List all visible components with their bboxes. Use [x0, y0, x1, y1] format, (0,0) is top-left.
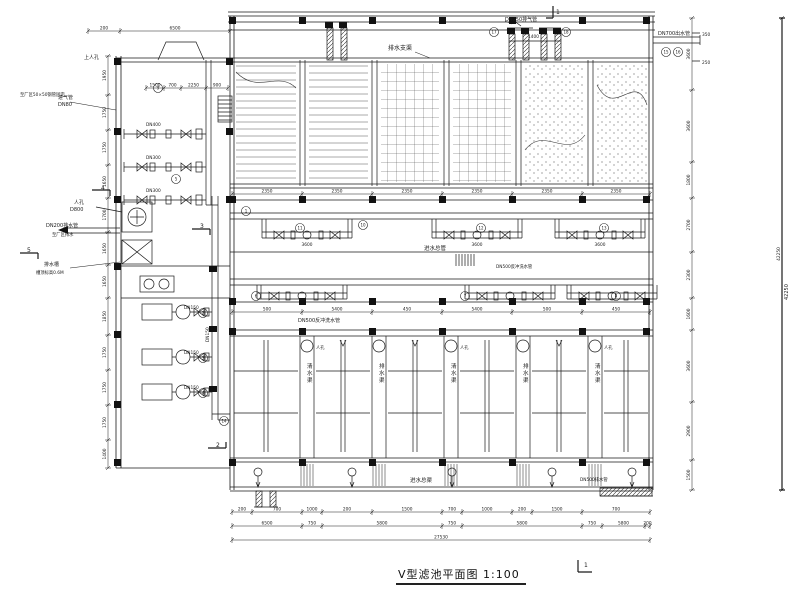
sand-bay6 — [597, 64, 647, 182]
column-marker — [226, 196, 233, 203]
column-marker — [229, 17, 236, 24]
callout-number: 13 — [601, 226, 607, 231]
column-marker — [579, 459, 586, 466]
annotation-label: DN500反冲洗水管 — [496, 263, 533, 270]
annotation-label: DN150 — [184, 350, 199, 356]
annotation-label: 清水渠 — [307, 362, 313, 384]
dim-label: 200 — [518, 507, 526, 513]
annotation-label: 排水支渠 — [388, 44, 412, 52]
annotation-label: DN150 — [184, 385, 199, 391]
dim-label: 2350 — [542, 189, 553, 195]
callout-number: 18 — [563, 30, 569, 35]
dim-label: 700 — [168, 83, 176, 89]
column-marker — [643, 328, 650, 335]
sand-bay5 — [525, 64, 583, 182]
annotation-label: DN700出水管 — [658, 30, 690, 37]
dim-label: 200 — [643, 521, 651, 527]
drawing-sheet: 2006500150070022509002350235023502350235… — [0, 0, 800, 600]
linework — [124, 129, 206, 139]
column-marker — [643, 459, 650, 466]
annotation-label: 至厂区排水 — [52, 231, 74, 238]
dim-label: 1000 — [307, 507, 318, 513]
callout-number: 15 — [663, 50, 669, 55]
bottom-left-riser2 — [270, 491, 276, 507]
annotation-label: 人孔 — [460, 344, 469, 351]
column-marker — [114, 128, 121, 135]
column-marker — [114, 263, 121, 270]
annotation-label: 清水渠 — [451, 362, 457, 384]
column-marker — [114, 331, 121, 338]
linework — [460, 340, 514, 452]
dim-label: 1750 — [102, 142, 108, 153]
dim-label: 1700 — [102, 209, 108, 220]
annotation-label: DN400 — [146, 122, 161, 128]
dim-label: 1650 — [102, 276, 108, 287]
annotation-label: 排水渠 — [523, 362, 529, 384]
annotation-label: 3600 — [595, 242, 606, 248]
column-marker — [299, 196, 306, 203]
dim-label: 700 — [273, 507, 281, 513]
column-marker — [226, 58, 233, 65]
annotation-label: DN150 — [205, 327, 211, 342]
linework — [450, 476, 454, 487]
column-marker — [439, 298, 446, 305]
annotation-label: 42250 — [784, 284, 790, 300]
column-marker — [299, 17, 306, 24]
column-marker — [299, 328, 306, 335]
linework — [630, 476, 634, 487]
callout-number: 4 — [202, 391, 205, 396]
column-marker — [369, 196, 376, 203]
column-marker — [643, 17, 650, 24]
linework — [373, 464, 385, 486]
drawing-title: V型滤池平面图 1:100 — [396, 566, 526, 585]
linework — [532, 340, 586, 452]
dim-label: 750 — [448, 521, 456, 527]
dim-label: 2350 — [472, 189, 483, 195]
dim-label: 1650 — [102, 243, 108, 254]
dim-label: 2350 — [332, 189, 343, 195]
callout-number: 17 — [491, 30, 497, 35]
dim-label: 2350 — [611, 189, 622, 195]
annotation-label: DN250排气管 — [505, 16, 537, 23]
column-marker — [229, 328, 236, 335]
linework — [588, 60, 593, 186]
column-marker — [579, 328, 586, 335]
dim-label: 1600 — [686, 308, 692, 319]
dim-label: 750 — [308, 521, 316, 527]
dim-label: 2900 — [686, 425, 692, 436]
column-marker — [509, 459, 516, 466]
linework — [124, 162, 206, 172]
grating-bay4 — [453, 64, 511, 182]
linework — [350, 476, 354, 487]
dim-label: 42250 — [776, 247, 782, 261]
weir-plates-bay2 — [309, 64, 368, 182]
dim-label: 500 — [263, 307, 271, 313]
column-marker — [369, 328, 376, 335]
dim-label: 500 — [543, 307, 551, 313]
linework — [516, 336, 530, 458]
dim-label: 1850 — [102, 311, 108, 322]
callout-number: 12 — [478, 226, 484, 231]
dim-label: 1500 — [552, 507, 563, 513]
linework — [445, 464, 457, 486]
linework — [316, 340, 370, 452]
linework — [550, 476, 554, 487]
annotation-label: 5 — [27, 247, 31, 254]
annotation-label: 进水总管 — [424, 244, 447, 252]
column-marker — [369, 17, 376, 24]
dim-label: 1500 — [686, 469, 692, 480]
column-marker — [579, 196, 586, 203]
dim-label: 2250 — [188, 83, 199, 89]
dim-label: 5400 — [472, 307, 483, 313]
annotation-label: DN300 — [146, 155, 161, 161]
column-marker — [369, 298, 376, 305]
annotation-label: D800 — [70, 207, 83, 213]
linework — [444, 60, 449, 186]
linework — [456, 254, 474, 266]
column-marker — [509, 196, 516, 203]
dim-label: 5400 — [332, 307, 343, 313]
dim-label: 1750 — [102, 382, 108, 393]
dim-label: 450 — [403, 307, 411, 313]
annotation-label: DN150 — [184, 305, 199, 311]
annotation-label: 350 — [702, 32, 710, 38]
dim-label: 6500 — [262, 521, 273, 527]
dim-label: 3600 — [686, 48, 692, 59]
dim-label: 1000 — [482, 507, 493, 513]
column-marker — [439, 17, 446, 24]
linework — [604, 340, 648, 452]
dim-label: 3600 — [686, 360, 692, 371]
annotation-label: DN500反冲洗水管 — [298, 317, 340, 324]
callout-number: 5 — [175, 177, 178, 182]
callout-number: 6 — [255, 294, 258, 299]
dim-label: 700 — [448, 507, 456, 513]
annotation-label: 清水渠 — [595, 362, 601, 384]
linework — [388, 340, 442, 452]
linework — [372, 60, 377, 186]
filter-bed-textures — [236, 64, 647, 182]
column-marker — [439, 196, 446, 203]
callout-number: 3 — [202, 356, 205, 361]
dim-label: 1400 — [102, 448, 108, 459]
dim-label: 5800 — [377, 521, 388, 527]
annotation-label: 槽顶标高0.6M — [36, 269, 64, 276]
top-pipe-risers — [325, 18, 561, 60]
linework — [444, 336, 458, 458]
annotation-label: 至厂区50×50钢管固定 — [20, 91, 65, 98]
linework — [300, 336, 314, 458]
annotation-label: 1400 — [528, 34, 539, 40]
linework — [516, 60, 521, 186]
linework — [234, 340, 298, 452]
dn700-outlet-stub — [653, 33, 700, 61]
column-marker — [114, 58, 121, 65]
dim-label: 1750 — [102, 347, 108, 358]
linework — [301, 464, 313, 486]
annotation-label: DN200排水管 — [46, 222, 78, 229]
annotation-label: 上人孔 — [84, 54, 99, 61]
callout-number: 14 — [221, 419, 227, 424]
column-marker — [299, 459, 306, 466]
column-marker — [439, 328, 446, 335]
linework — [300, 60, 305, 186]
dim-label: 6500 — [170, 26, 181, 32]
column-marker — [229, 298, 236, 305]
dim-label: 1750 — [102, 107, 108, 118]
dim-label: 2350 — [402, 189, 413, 195]
dim-label: 200 — [343, 507, 351, 513]
dim-label: 450 — [612, 307, 620, 313]
column-marker — [369, 459, 376, 466]
dim-label: 200 — [238, 507, 246, 513]
annotation-label: 3 — [200, 223, 204, 230]
column-marker — [643, 196, 650, 203]
bottom-left-riser1 — [256, 491, 262, 507]
media-contours — [236, 72, 647, 150]
annotation-label: DN300 — [146, 188, 161, 194]
dim-label: 2700 — [686, 219, 692, 230]
column-marker — [509, 328, 516, 335]
canopy — [158, 42, 204, 60]
dim-label: 700 — [612, 507, 620, 513]
annotation-label: 人孔 — [316, 344, 325, 351]
dim-label: 2300 — [686, 269, 692, 280]
callout-number: 16 — [675, 50, 681, 55]
callout-number: 1 — [245, 209, 248, 214]
callout-number: 7 — [464, 294, 467, 299]
cad-canvas: 2006500150070022509002350235023502350235… — [0, 0, 800, 600]
annotation-label: 人孔 — [604, 344, 613, 351]
annotation-label: 1 — [584, 562, 588, 569]
annotation-label: 排水渠 — [379, 362, 385, 384]
linework — [124, 195, 206, 205]
column-marker — [114, 401, 121, 408]
column-marker — [114, 196, 121, 203]
annotation-label: 进水总渠 — [410, 476, 433, 484]
annotation-label: 1 — [556, 9, 560, 16]
dim-label: 200 — [100, 26, 108, 32]
dim-label: 1950 — [102, 70, 108, 81]
annotation-label: 排水槽 — [44, 261, 59, 268]
dim-label: 27530 — [434, 535, 448, 541]
annotation-label: 2 — [216, 442, 220, 449]
callout-number: 11 — [297, 226, 303, 231]
bottom-right-stub — [600, 488, 652, 496]
callout-number: 10 — [360, 223, 366, 228]
column-marker — [579, 17, 586, 24]
linework — [432, 219, 522, 238]
column-marker — [114, 459, 121, 466]
callout-number: 2 — [202, 311, 205, 316]
dim-label: 750 — [588, 521, 596, 527]
annotation-label: DN80 — [58, 102, 72, 108]
linework — [517, 464, 529, 486]
dim-label: 900 — [213, 83, 221, 89]
dim-label: 1500 — [402, 507, 413, 513]
linework — [372, 336, 386, 458]
linework — [588, 336, 602, 458]
dim-label: 5800 — [618, 521, 629, 527]
dim-label: 5800 — [517, 521, 528, 527]
linework — [256, 476, 260, 487]
annotation-label: 3600 — [302, 242, 313, 248]
annotation-label: 人孔 — [74, 199, 84, 206]
linework — [555, 219, 645, 238]
callout-number: 9 — [157, 86, 160, 91]
column-marker — [226, 128, 233, 135]
dim-label: 2350 — [262, 189, 273, 195]
dim-label: 1750 — [102, 417, 108, 428]
linework — [262, 219, 352, 238]
dim-label: 3600 — [686, 120, 692, 131]
column-marker — [229, 459, 236, 466]
callout-number: 8 — [615, 294, 618, 299]
dim-label: 1800 — [686, 174, 692, 185]
annotation-label: 4 — [101, 185, 105, 192]
annotation-label: DN500排水管 — [580, 476, 608, 483]
grating-bay3 — [381, 64, 439, 182]
annotation-label: 3600 — [472, 242, 483, 248]
weir-plates-bay1 — [236, 64, 296, 182]
annotation-label: 250 — [702, 60, 710, 66]
